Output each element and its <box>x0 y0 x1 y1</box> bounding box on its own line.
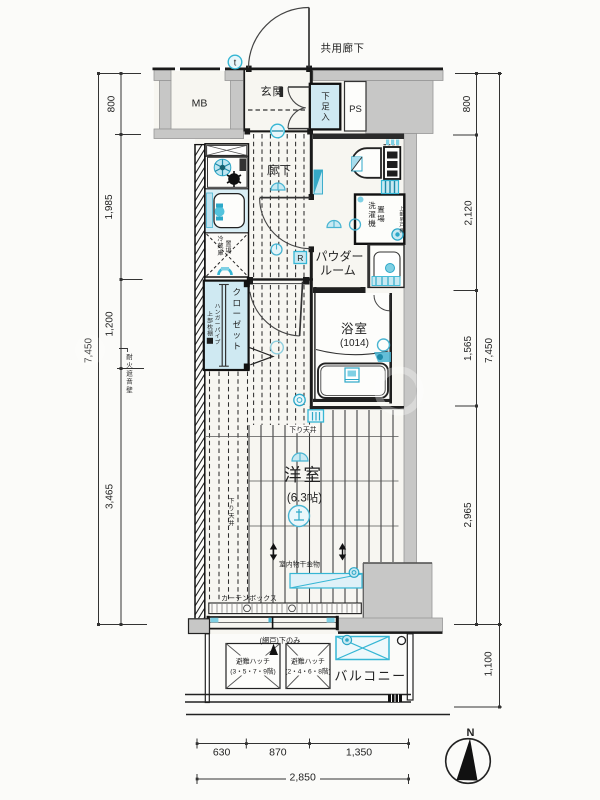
svg-text:カーテンボックス: カーテンボックス <box>221 595 277 603</box>
svg-text:上部吊戸棚: 上部吊戸棚 <box>399 205 404 234</box>
svg-text:PS: PS <box>349 104 362 115</box>
svg-text:玄関: 玄関 <box>261 84 285 98</box>
svg-text:ルーム: ルーム <box>320 264 356 278</box>
svg-text:下り天井: 下り天井 <box>289 425 316 434</box>
svg-text:1,350: 1,350 <box>346 747 372 759</box>
svg-text:洋室: 洋室 <box>284 465 323 485</box>
svg-text:630: 630 <box>213 747 231 759</box>
svg-text:2,850: 2,850 <box>290 772 316 784</box>
svg-text:1,985: 1,985 <box>104 194 115 219</box>
svg-text:廊下: 廊下 <box>267 163 292 177</box>
svg-text:2,120: 2,120 <box>464 200 475 225</box>
svg-text:1,565: 1,565 <box>463 336 474 361</box>
svg-text:(2・4・6・8階): (2・4・6・8階) <box>285 667 330 676</box>
svg-text:室内物干金物: 室内物干金物 <box>279 560 320 569</box>
svg-text:ハンガーパイプ: ハンガーパイプ <box>215 304 221 346</box>
svg-text:(1014): (1014) <box>340 338 369 349</box>
svg-text:置場: 置場 <box>377 205 385 223</box>
svg-text:MB: MB <box>192 98 208 110</box>
svg-text:冷蔵庫: 冷蔵庫 <box>217 235 223 257</box>
svg-text:2,965: 2,965 <box>463 502 474 527</box>
svg-text:洗濯機: 洗濯機 <box>368 200 376 228</box>
svg-text:R: R <box>297 253 303 263</box>
svg-text:(網戸)下のみ: (網戸)下のみ <box>260 636 301 645</box>
svg-text:N: N <box>467 727 475 739</box>
svg-text:バルコニー: バルコニー <box>334 669 406 684</box>
svg-text:クローゼット: クローゼット <box>232 287 241 351</box>
svg-text:800: 800 <box>462 95 473 112</box>
svg-text:上部枕棚: 上部枕棚 <box>207 310 213 338</box>
svg-text:(3・5・7・9階): (3・5・7・9階) <box>230 667 275 676</box>
svg-text:800: 800 <box>107 95 118 112</box>
svg-text:7,450: 7,450 <box>484 338 495 363</box>
svg-text:避難ハッチ: 避難ハッチ <box>291 657 325 666</box>
svg-text:1,100: 1,100 <box>484 651 495 676</box>
svg-text:1,200: 1,200 <box>105 311 116 336</box>
svg-text:共用廊下: 共用廊下 <box>321 42 365 55</box>
svg-text:浴室: 浴室 <box>341 321 368 336</box>
svg-text:3,465: 3,465 <box>105 484 116 509</box>
svg-text:耐火遮音壁: 耐火遮音壁 <box>126 353 133 394</box>
svg-text:下足入: 下足入 <box>321 91 330 122</box>
svg-text:パウダー: パウダー <box>315 249 363 264</box>
svg-text:870: 870 <box>269 747 287 759</box>
svg-text:避難ハッチ: 避難ハッチ <box>236 657 270 666</box>
svg-text:(6.3帖): (6.3帖) <box>287 491 322 505</box>
